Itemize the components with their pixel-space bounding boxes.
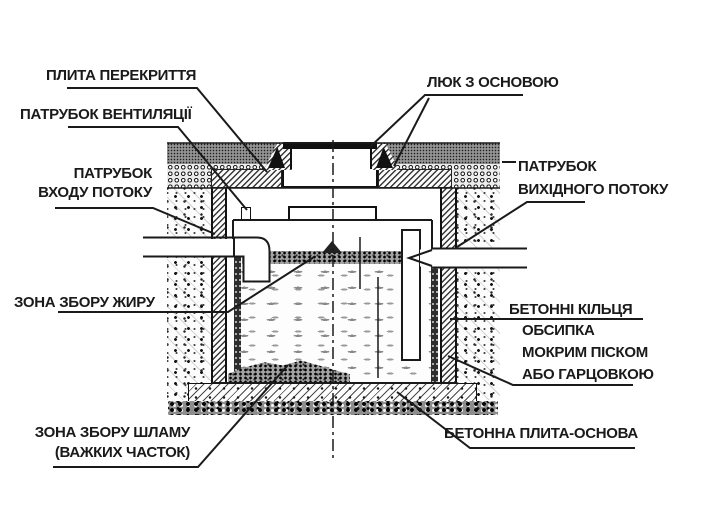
label-inlet-pipe: ПАТРУБОК ВХОДУ ПОТОКУ xyxy=(28,164,152,202)
label-concrete-rings: БЕТОННІ КІЛЬЦЯ xyxy=(509,300,632,319)
label-sludge-zone: ЗОНА ЗБОРУ ШЛАМУ (ВАЖКИХ ЧАСТОК) xyxy=(16,423,190,463)
leader-hatch xyxy=(370,95,523,166)
water-level-marker xyxy=(322,241,342,253)
outlet-riser-pipe xyxy=(402,230,420,360)
leader-inlet-pipe xyxy=(55,208,215,234)
grease-trap-cross-section-diagram: ПЛИТА ПЕРЕКРИТТЯ ПАТРУБОК ВЕНТИЛЯЦІЇ ЛЮК… xyxy=(0,0,704,528)
inlet-elbow xyxy=(234,238,270,282)
label-grease-zone: ЗОНА ЗБОРУ ЖИРУ xyxy=(14,293,155,312)
label-vent-pipe: ПАТРУБОК ВЕНТИЛЯЦІЇ xyxy=(20,105,191,124)
label-cover-slab: ПЛИТА ПЕРЕКРИТТЯ xyxy=(46,66,196,85)
label-backfill: ОБСИПКА МОКРИМ ПІСКОМ АБО ГАРЦОВКОЮ xyxy=(522,320,654,386)
outlet-pipe-fill xyxy=(420,250,527,267)
label-base-slab: БЕТОННА ПЛИТА-ОСНОВА xyxy=(444,424,638,443)
leader-cover-slab xyxy=(67,88,267,172)
label-hatch: ЛЮК З ОСНОВОЮ xyxy=(427,73,559,92)
inlet-pipe xyxy=(143,239,236,256)
label-outlet-pipe: ПАТРУБОК ВИХІДНОГО ПОТОКУ xyxy=(518,155,668,201)
